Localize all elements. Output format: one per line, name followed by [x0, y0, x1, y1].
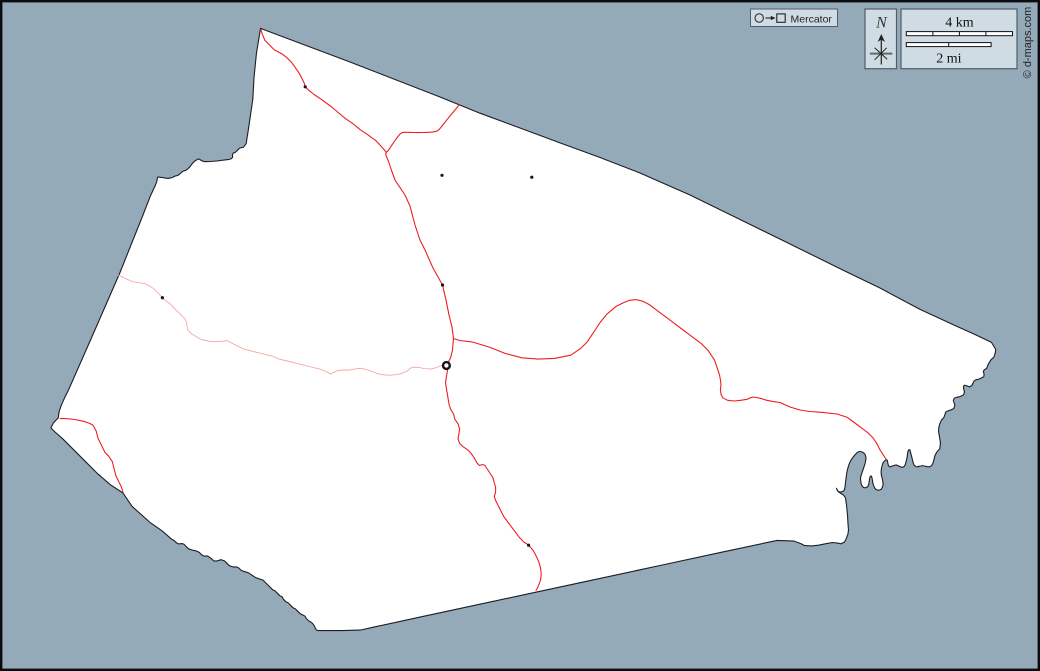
svg-text:N: N	[875, 15, 888, 32]
svg-text:© d-maps.com: © d-maps.com	[1022, 7, 1034, 79]
svg-text:4 km: 4 km	[945, 16, 974, 31]
svg-text:Mercator: Mercator	[791, 13, 833, 25]
svg-text:2 mi: 2 mi	[936, 52, 961, 67]
